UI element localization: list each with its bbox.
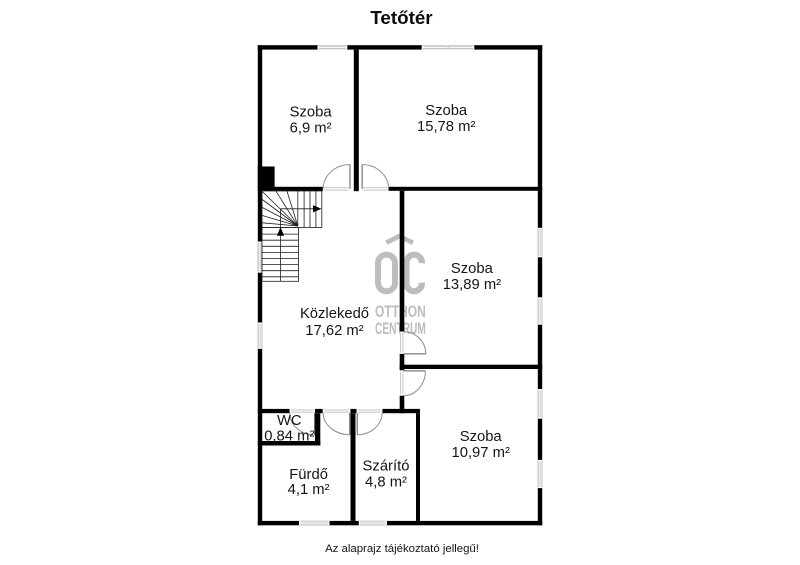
- svg-text:Szoba: Szoba: [451, 261, 494, 277]
- svg-text:WC: WC: [277, 413, 302, 429]
- svg-text:Szárító: Szárító: [363, 459, 410, 475]
- svg-text:10,97 m²: 10,97 m²: [451, 445, 509, 461]
- svg-text:15,78 m²: 15,78 m²: [417, 119, 475, 135]
- svg-text:Szoba: Szoba: [460, 429, 503, 445]
- svg-text:Az alaprajz tájékoztató jelleg: Az alaprajz tájékoztató jellegű!: [325, 543, 479, 555]
- svg-text:17,62 m²: 17,62 m²: [305, 323, 363, 339]
- svg-text:0,84 m²: 0,84 m²: [264, 429, 314, 445]
- svg-text:Közlekedő: Közlekedő: [300, 306, 369, 322]
- svg-text:13,89 m²: 13,89 m²: [443, 277, 501, 293]
- svg-text:6,9 m²: 6,9 m²: [290, 120, 332, 136]
- svg-text:Szoba: Szoba: [290, 104, 333, 120]
- svg-text:Szoba: Szoba: [425, 103, 468, 119]
- svg-text:4,8 m²: 4,8 m²: [365, 474, 407, 490]
- svg-text:Tetőtér: Tetőtér: [370, 7, 433, 28]
- svg-text:4,1 m²: 4,1 m²: [288, 482, 330, 498]
- svg-text:Fürdő: Fürdő: [289, 467, 328, 483]
